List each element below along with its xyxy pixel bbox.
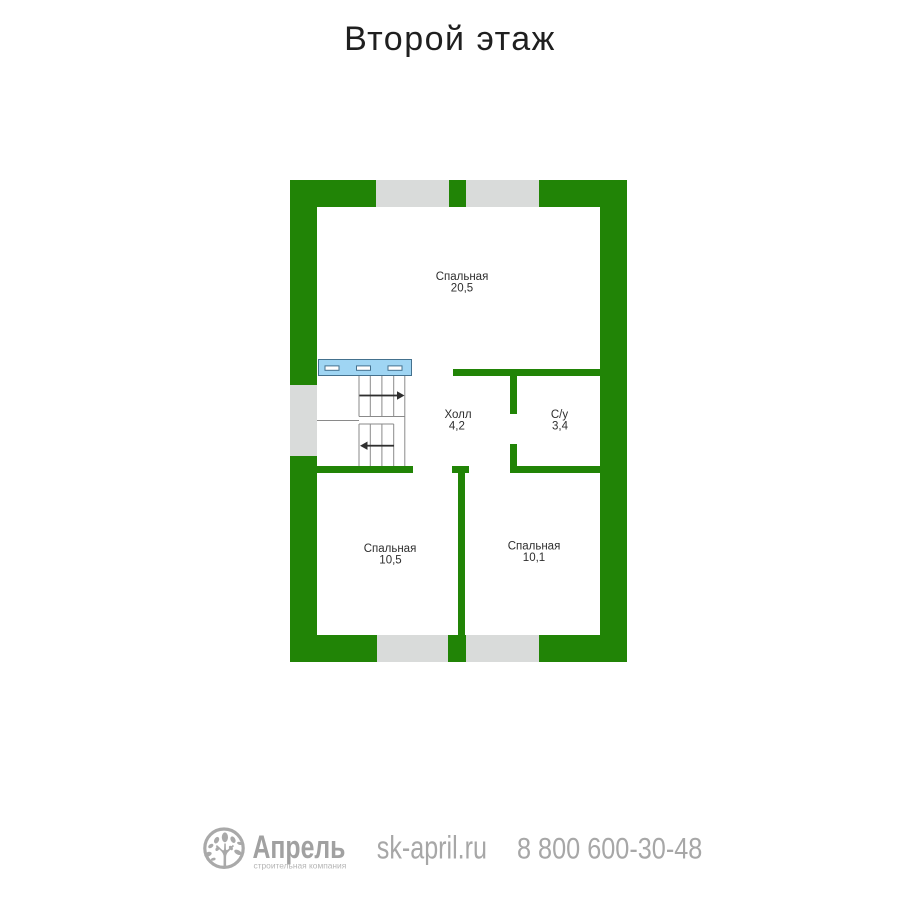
svg-text:Спальная: Спальная bbox=[508, 540, 561, 552]
svg-text:3,4: 3,4 bbox=[552, 421, 569, 433]
svg-text:20,5: 20,5 bbox=[451, 283, 473, 295]
svg-text:С/у: С/у bbox=[551, 409, 569, 421]
svg-text:Спальная: Спальная bbox=[436, 271, 489, 283]
svg-text:4,2: 4,2 bbox=[449, 421, 465, 433]
svg-text:строительная компания: строительная компания bbox=[254, 861, 347, 871]
svg-text:10,5: 10,5 bbox=[379, 554, 401, 566]
svg-text:Спальная: Спальная bbox=[364, 543, 417, 555]
svg-text:10,1: 10,1 bbox=[523, 552, 545, 564]
svg-text:Холл: Холл bbox=[444, 409, 471, 421]
svg-text:Второй этаж: Второй этаж bbox=[344, 20, 556, 58]
svg-text:8 800 600-30-48: 8 800 600-30-48 bbox=[517, 831, 702, 865]
svg-text:sk-april.ru: sk-april.ru bbox=[377, 831, 487, 867]
